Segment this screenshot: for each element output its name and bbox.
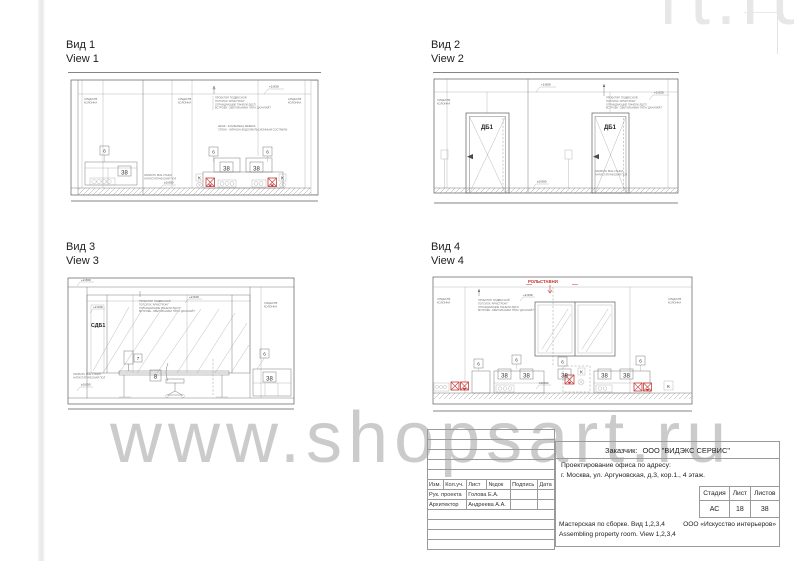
svg-text:+2.830: +2.830 [269, 85, 279, 89]
view2-title: Вид 2 View 2 [431, 38, 464, 66]
ceiling-note: ПРОЕКТИР. ПОДВЕСНОЙ ПОТОЛОК 'АРМСТРОНГ' … [213, 86, 272, 110]
office-chair [166, 363, 185, 397]
outlet-symbol [206, 178, 215, 187]
customer-row: Заказчик: ООО "ВИДЭКС СЕРВИС" [556, 442, 779, 459]
svg-text:ПОТОЛОК 'АРМСТРОНГ': ПОТОЛОК 'АРМСТРОНГ' [478, 301, 509, 305]
watermark-corner: rt.ru [660, 0, 794, 36]
elevation-mark-mid: +2.630 [185, 295, 202, 303]
svg-text:РОЛЬСТАВНИ: РОЛЬСТАВНИ [528, 279, 558, 284]
svg-text:КОЛОННА: КОЛОННА [437, 300, 450, 304]
cabinet-right: 38 6 [253, 349, 291, 396]
svg-text:38: 38 [121, 170, 128, 176]
svg-text:38: 38 [623, 373, 630, 379]
role-project-lead: Рук. проекта [428, 490, 467, 500]
view1-title-en: View 1 [66, 52, 99, 66]
svg-text:ЗАКРЫТЬ ВСЕ СТЫКИ: ЗАКРЫТЬ ВСЕ СТЫКИ [595, 169, 623, 173]
sheet-header: Лист [729, 487, 750, 501]
outlet-symbol [461, 382, 469, 390]
svg-text:ПРОЕКТИР. ПОДВЕСНОЙ: ПРОЕКТИР. ПОДВЕСНОЙ [139, 299, 171, 303]
project-line1: Проектирование офиса по адресу: [561, 461, 774, 471]
svg-text:ОГРАЖДАЮЩИЕ ПАНЕЛИ ЛДСП: ОГРАЖДАЮЩИЕ ПАНЕЛИ ЛДСП [606, 102, 647, 106]
svg-text:ЗАКРЫТЬ ВСЕ СТЫКИ: ЗАКРЫТЬ ВСЕ СТЫКИ [73, 372, 101, 376]
column-label: СУЩЕСТВ. КОЛОННА СУЩЕСТВ. КОЛОННА [437, 297, 682, 304]
elevation-mark-mid: +2.630 [520, 293, 535, 301]
svg-text:+2.630: +2.630 [523, 293, 533, 297]
elevation-mark-floor: ±0.000 [533, 180, 549, 188]
svg-text:+2.800: +2.800 [81, 278, 91, 282]
ceiling-note: ПРОЕКТИР. ПОДВЕСНОЙ ПОТОЛОК 'АРМСТРОНГ' … [603, 84, 663, 110]
cabinet-left: 38 6 [85, 146, 137, 185]
revision-row: Рук. проекта Голова Е.А. [428, 490, 555, 500]
svg-text:+2.630: +2.630 [93, 305, 103, 309]
sheets-total: 38 [751, 501, 779, 518]
svg-text:6: 6 [263, 352, 266, 357]
svg-text:ШКАФ - КОНФЕРЕНЦ МЕБЕЛЬ: ШКАФ - КОНФЕРЕНЦ МЕБЕЛЬ [218, 124, 256, 128]
column-label: СУЩЕСТВ. КОЛОННА [437, 98, 451, 105]
view3-title-en: View 3 [66, 254, 99, 268]
rev-col-data: Дата [538, 480, 555, 490]
svg-text:СУЩЕСТВ.: СУЩЕСТВ. [288, 97, 302, 101]
view3-drawing: +2.800 СДБ1 +2.630 ПРОЕКТИР. ПОДВЕСНОЙ П… [67, 271, 297, 413]
svg-text:38: 38 [523, 373, 530, 379]
elevation-mark-floor: ±0.000 [536, 381, 551, 389]
svg-text:6: 6 [103, 149, 106, 154]
door-swing-arrow [467, 154, 473, 159]
svg-text:АНТИСТАТИЧЕСКИЙ ПОЛ: АНТИСТАТИЧЕСКИЙ ПОЛ [595, 172, 627, 176]
outlet-symbol [634, 383, 642, 391]
description-ru: Мастерская по сборке. Вид 1,2,3,4 [559, 520, 665, 530]
svg-text:ПРОЕКТИР. ПОДВЕСНОЙ: ПРОЕКТИР. ПОДВЕСНОЙ [606, 96, 638, 100]
svg-text:СТЕНА - ОКРАСКА ВОДОЭМУЛЬСИОНН: СТЕНА - ОКРАСКА ВОДОЭМУЛЬСИОННЫМ СОСТАВО… [218, 127, 287, 131]
sheets-header: Листов [751, 487, 779, 501]
project-line2: г. Москва, ул. Аргуновская, д.3, кор.1.,… [561, 471, 774, 481]
rev-col-koluch: Кол.уч. [444, 480, 467, 490]
stage-table: Стадия Лист Листов АС 18 38 [699, 486, 779, 518]
rev-col-ndok: №док [487, 480, 511, 490]
view1-title: Вид 1 View 1 [66, 38, 99, 66]
rev-col-list: Лист [467, 480, 487, 490]
svg-text:СУЩЕСТВ.: СУЩЕСТВ. [178, 97, 192, 101]
svg-text:СУЩЕСТВ.: СУЩЕСТВ. [437, 297, 451, 301]
svg-text:КОЛОННА: КОЛОННА [668, 300, 681, 304]
view1-title-ru: Вид 1 [66, 38, 99, 52]
view1-drawing: СУЩЕСТВ. КОЛОННА СУЩЕСТВ. КОЛОННА СУЩЕСТ… [68, 70, 324, 206]
stage-value: АС [700, 501, 729, 518]
person-project-lead: Голова Е.А. [467, 490, 511, 500]
svg-text:38: 38 [601, 373, 608, 379]
furniture-row: 6 38 38 6 ±0.000 [434, 355, 673, 393]
svg-text:ВСТРОЕН. СВЕТИЛЬНИКИ ТИПА 'ДАУ: ВСТРОЕН. СВЕТИЛЬНИКИ ТИПА 'ДАУНЛАЙТ' [606, 106, 663, 110]
svg-text:К: К [198, 176, 201, 181]
door-swing-arrow [593, 154, 599, 159]
window [535, 302, 615, 356]
view2-title-ru: Вид 2 [431, 38, 464, 52]
svg-text:6: 6 [639, 359, 642, 364]
svg-text:ДБ1: ДБ1 [481, 125, 494, 131]
svg-text:ПОТОЛОК 'АРМСТРОНГ': ПОТОЛОК 'АРМСТРОНГ' [215, 99, 246, 103]
svg-text:±0.000: ±0.000 [81, 383, 91, 387]
right-column-band: СУЩЕСТВ. КОЛОННА [250, 287, 278, 398]
svg-text:ОГРАЖДАЮЩИЕ ПАНЕЛИ ЛДСП: ОГРАЖДАЮЩИЕ ПАНЕЛИ ЛДСП [139, 306, 180, 310]
svg-text:38: 38 [253, 166, 260, 172]
view2-drawing: СУЩЕСТВ. КОЛОННА +2.800 +2.830 ПРОЕКТИР.… [433, 70, 681, 206]
svg-text:КОЛОННА: КОЛОННА [84, 100, 97, 104]
elevation-mark-top: +2.800 [77, 278, 94, 286]
svg-text:КОЛОННА: КОЛОННА [264, 304, 277, 308]
floor-hatch [435, 188, 678, 193]
scan-edge [38, 0, 45, 561]
revision-row: Архитектор Андреева А.А. [428, 500, 555, 510]
elevation-mark-top: +2.830 [264, 85, 284, 94]
view2-title-en: View 2 [431, 52, 464, 66]
rev-col-podpis: Подпись [511, 480, 538, 490]
rev-col-izm: Изм. [428, 480, 444, 490]
description-en: Assembling property room. View 1,2,3,4 [559, 530, 776, 540]
svg-text:СУЩЕСТВ.: СУЩЕСТВ. [668, 297, 682, 301]
svg-text:38: 38 [501, 373, 508, 379]
drawing-sheet: rt.ru Вид 1 View 1 СУЩЕСТВ. КОЛОННА СУЩЕ… [0, 0, 794, 561]
title-block: Изм. Кол.уч. Лист №док Подпись Дата Рук.… [427, 429, 778, 556]
title-block-right: Заказчик: ООО "ВИДЭКС СЕРВИС" Проектиров… [555, 441, 780, 547]
column-hatch-band [311, 81, 318, 195]
svg-text:ВСТРОЕН. СВЕТИЛЬНИКИ ТИПА 'ДАУ: ВСТРОЕН. СВЕТИЛЬНИКИ ТИПА 'ДАУНЛАЙТ' [215, 106, 272, 110]
svg-text:СУЩЕСТВ.: СУЩЕСТВ. [437, 98, 451, 102]
svg-text:ПРОЕКТИР. ПОДВЕСНОЙ: ПРОЕКТИР. ПОДВЕСНОЙ [215, 96, 247, 100]
revision-header-row: Изм. Кол.уч. Лист №док Подпись Дата [428, 480, 555, 490]
svg-text:ОГРАЖДАЮЩИЕ ПАНЕЛИ ЛДСП: ОГРАЖДАЮЩИЕ ПАНЕЛИ ЛДСП [478, 305, 519, 309]
svg-text:КОЛОННА: КОЛОННА [288, 100, 301, 104]
svg-text:ВСТРОЕН. СВЕТИЛЬНИКИ ТИПА 'ДАУ: ВСТРОЕН. СВЕТИЛЬНИКИ ТИПА 'ДАУНЛАЙТ' [478, 308, 535, 312]
floor-note: ЗАКРЫТЬ ВСЕ СТЫКИ АНТИСТАТИЧЕСКИЙ ПОЛ ±0… [144, 173, 176, 189]
roller-shutter-label: РОЛЬСТАВНИ [526, 279, 578, 293]
role-architect: Архитектор [428, 500, 467, 510]
svg-text:6: 6 [212, 150, 215, 155]
callout-8: 8 [150, 370, 161, 381]
svg-text:ПОТОЛОК 'АРМСТРОНГ': ПОТОЛОК 'АРМСТРОНГ' [606, 99, 637, 103]
svg-text:АНТИСТАТИЧЕСКИЙ ПОЛ: АНТИСТАТИЧЕСКИЙ ПОЛ [73, 375, 105, 379]
view4-title: Вид 4 View 4 [431, 240, 464, 268]
elevation-mark-mid: +2.800 [536, 83, 556, 92]
door-note: ЗАКРЫТЬ ВСЕ СТЫКИ АНТИСТАТИЧЕСКИЙ ПОЛ [595, 169, 627, 176]
svg-text:К: К [580, 370, 583, 375]
ceiling-note: ПРОЕКТИР. ПОДВЕСНОЙ ПОТОЛОК 'АРМСТРОНГ' … [139, 291, 196, 313]
wall-note: ШКАФ - КОНФЕРЕНЦ МЕБЕЛЬ СТЕНА - ОКРАСКА … [218, 124, 287, 131]
svg-text:ПРОЕКТИР. ПОДВЕСНОЙ: ПРОЕКТИР. ПОДВЕСНОЙ [478, 298, 510, 302]
view4-title-ru: Вид 4 [431, 240, 464, 254]
sheet-description: Мастерская по сборке. Вид 1,2,3,4 ООО «И… [559, 520, 776, 540]
project-address: Проектирование офиса по адресу: г. Москв… [561, 461, 774, 481]
floor-hatch [78, 188, 311, 195]
svg-text:ЗАКРЫТЬ ВСЕ СТЫКИ: ЗАКРЫТЬ ВСЕ СТЫКИ [144, 173, 172, 177]
svg-text:+2.630: +2.630 [189, 295, 199, 299]
dimension-marks [441, 150, 572, 188]
svg-text:6: 6 [515, 358, 518, 363]
svg-text:К: К [281, 176, 284, 181]
svg-text:6: 6 [266, 150, 269, 155]
outlet-symbol [268, 178, 277, 187]
stage-header: Стадия [700, 487, 729, 501]
svg-text:6: 6 [561, 360, 564, 365]
sheet-number: 18 [729, 501, 750, 518]
svg-text:К: К [667, 384, 670, 389]
svg-text:38: 38 [223, 166, 230, 172]
monitor [124, 351, 133, 364]
svg-text:ОГРАЖДАЮЩИЕ ПАНЕЛИ ЛДСП: ОГРАЖДАЮЩИЕ ПАНЕЛИ ЛДСП [215, 102, 256, 106]
svg-text:38: 38 [266, 376, 273, 382]
svg-text:7: 7 [137, 356, 140, 361]
svg-text:6: 6 [477, 362, 480, 367]
svg-text:38: 38 [561, 373, 568, 379]
svg-text:СУЩЕСТВ.: СУЩЕСТВ. [84, 97, 98, 101]
customer-label: Заказчик: [605, 446, 637, 455]
outlet-symbol [451, 382, 459, 390]
elevation-mark-door: +2.630 [90, 305, 105, 313]
svg-text:СУЩЕСТВ.: СУЩЕСТВ. [264, 301, 278, 305]
person-architect: Андреева А.А. [467, 500, 511, 510]
desk-and-chair [119, 351, 229, 397]
svg-text:ВСТРОЕН. СВЕТИЛЬНИКИ ТИПА 'ДАУ: ВСТРОЕН. СВЕТИЛЬНИКИ ТИПА 'ДАУНЛАЙТ' [139, 309, 196, 313]
view4-title-en: View 4 [431, 254, 464, 268]
door-1: ДБ1 [466, 92, 509, 193]
svg-text:КОЛОННА: КОЛОННА [178, 100, 191, 104]
svg-text:+2.800: +2.800 [541, 83, 551, 87]
outlet-symbol [644, 383, 652, 391]
view3-title-ru: Вид 3 [66, 240, 99, 254]
glass-reflections [93, 305, 249, 373]
column-label: СУЩЕСТВ. КОЛОННА СУЩЕСТВ. КОЛОННА СУЩЕСТ… [84, 97, 302, 104]
svg-text:±0.000: ±0.000 [539, 381, 549, 385]
svg-text:ПОТОЛОК 'АРМСТРОНГ': ПОТОЛОК 'АРМСТРОНГ' [139, 302, 170, 306]
svg-text:8: 8 [154, 375, 158, 381]
svg-text:+2.830: +2.830 [654, 91, 664, 95]
view3-title: Вид 3 View 3 [66, 240, 99, 268]
callout-7: 7 [134, 354, 142, 362]
svg-text:±0.000: ±0.000 [537, 180, 547, 184]
svg-text:±0.000: ±0.000 [164, 181, 174, 185]
customer-name: ООО "ВИДЭКС СЕРВИС" [642, 446, 730, 455]
floor-note: ЗАКРЫТЬ ВСЕ СТЫКИ АНТИСТАТИЧЕСКИЙ ПОЛ ±0… [73, 372, 105, 391]
revision-table: Изм. Кол.уч. Лист №док Подпись Дата Рук.… [427, 429, 555, 550]
svg-text:ДБ1: ДБ1 [604, 125, 617, 131]
shelving-center: 6 6 38 38 К К [196, 147, 286, 188]
svg-text:СДБ1: СДБ1 [91, 323, 105, 329]
company-name: ООО «Искусство интерьеров» [683, 520, 776, 530]
svg-text:КОЛОННА: КОЛОННА [437, 101, 450, 105]
